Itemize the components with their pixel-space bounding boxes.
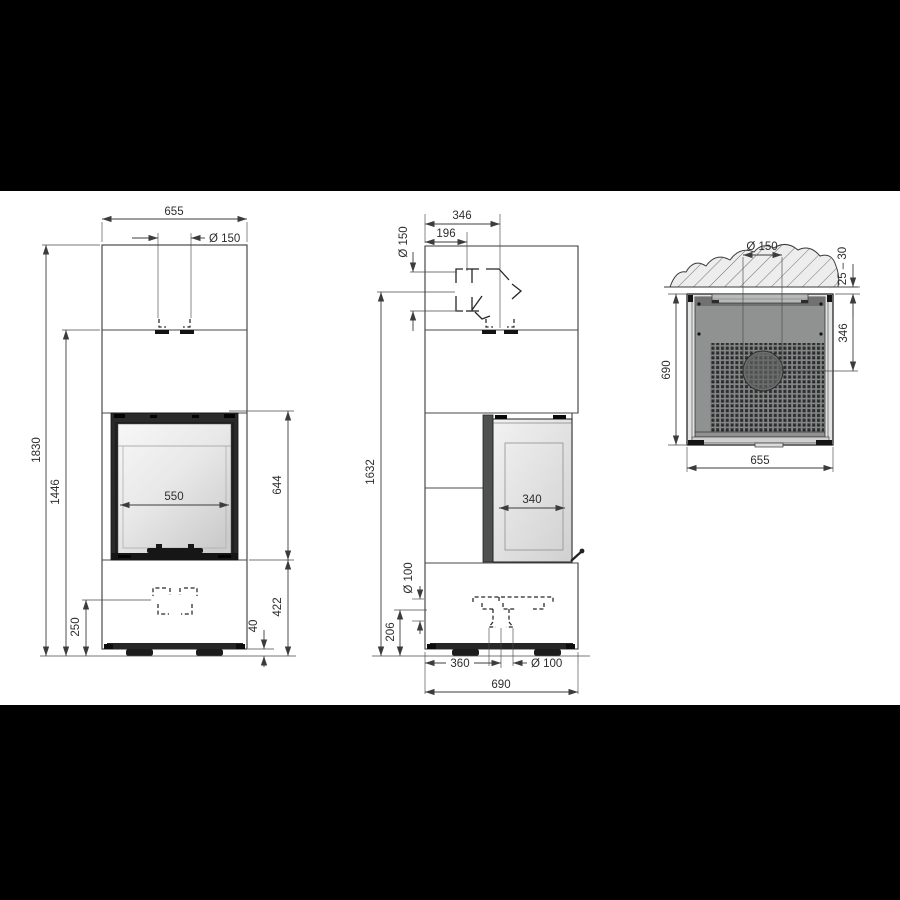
dim-front-width: 655 (164, 206, 183, 218)
dim-side-air-inlet-diameter-bottom: Ø 100 (531, 658, 562, 670)
side-door (483, 415, 584, 562)
dim-front-glass-width: 550 (164, 491, 183, 503)
front-door-handle (147, 548, 203, 553)
dim-side-glass-depth: 340 (522, 494, 541, 506)
dim-side-air-inlet-height: 206 (385, 622, 397, 641)
screw-dot (819, 302, 822, 305)
screw-dot (697, 332, 700, 335)
dim-side-flue-depth: 346 (452, 210, 471, 222)
dim-side-flue-offset: 196 (436, 228, 455, 240)
front-firebox (111, 413, 238, 560)
dim-top-wall-clearance: 25 – 30 (837, 247, 849, 285)
dim-front-firebox-height: 644 (272, 475, 284, 495)
dim-front-flue: Ø 150 (209, 233, 240, 245)
dim-side-air-inlet-offset: 360 (450, 658, 469, 670)
dim-front-air-inlet-height: 250 (70, 617, 82, 636)
dim-top-depth: 690 (661, 360, 673, 379)
top-front-tab (755, 443, 783, 447)
dim-side-rear-outlet-height: 1632 (365, 459, 377, 485)
dim-front-plinth-height: 40 (248, 620, 260, 633)
side-door-hinge (483, 415, 493, 562)
dim-top-flue-diameter: Ø 150 (746, 241, 777, 253)
dim-side-total-depth: 690 (491, 679, 510, 691)
screw-dot (697, 302, 700, 305)
dim-side-air-inlet-diameter: Ø 100 (403, 562, 415, 593)
top-view: Ø 150 25 – 30 690 346 655 (661, 241, 860, 472)
top-unit (687, 294, 833, 447)
screw-dot (819, 332, 822, 335)
technical-drawing: 655 Ø 150 1830 1446 250 550 644 422 (0, 0, 900, 900)
dim-top-flue-center-offset: 346 (838, 323, 850, 342)
top-rear-slot (712, 294, 808, 303)
dim-front-total-height: 1830 (31, 437, 43, 463)
front-glass (118, 424, 231, 554)
dim-side-flue-diameter: Ø 150 (398, 226, 410, 257)
dim-front-base-height: 422 (272, 597, 284, 616)
dim-top-width: 655 (750, 455, 769, 467)
dim-front-upper-height: 1446 (50, 479, 62, 505)
screenshot-canvas: 655 Ø 150 1830 1446 250 550 644 422 (0, 0, 900, 900)
